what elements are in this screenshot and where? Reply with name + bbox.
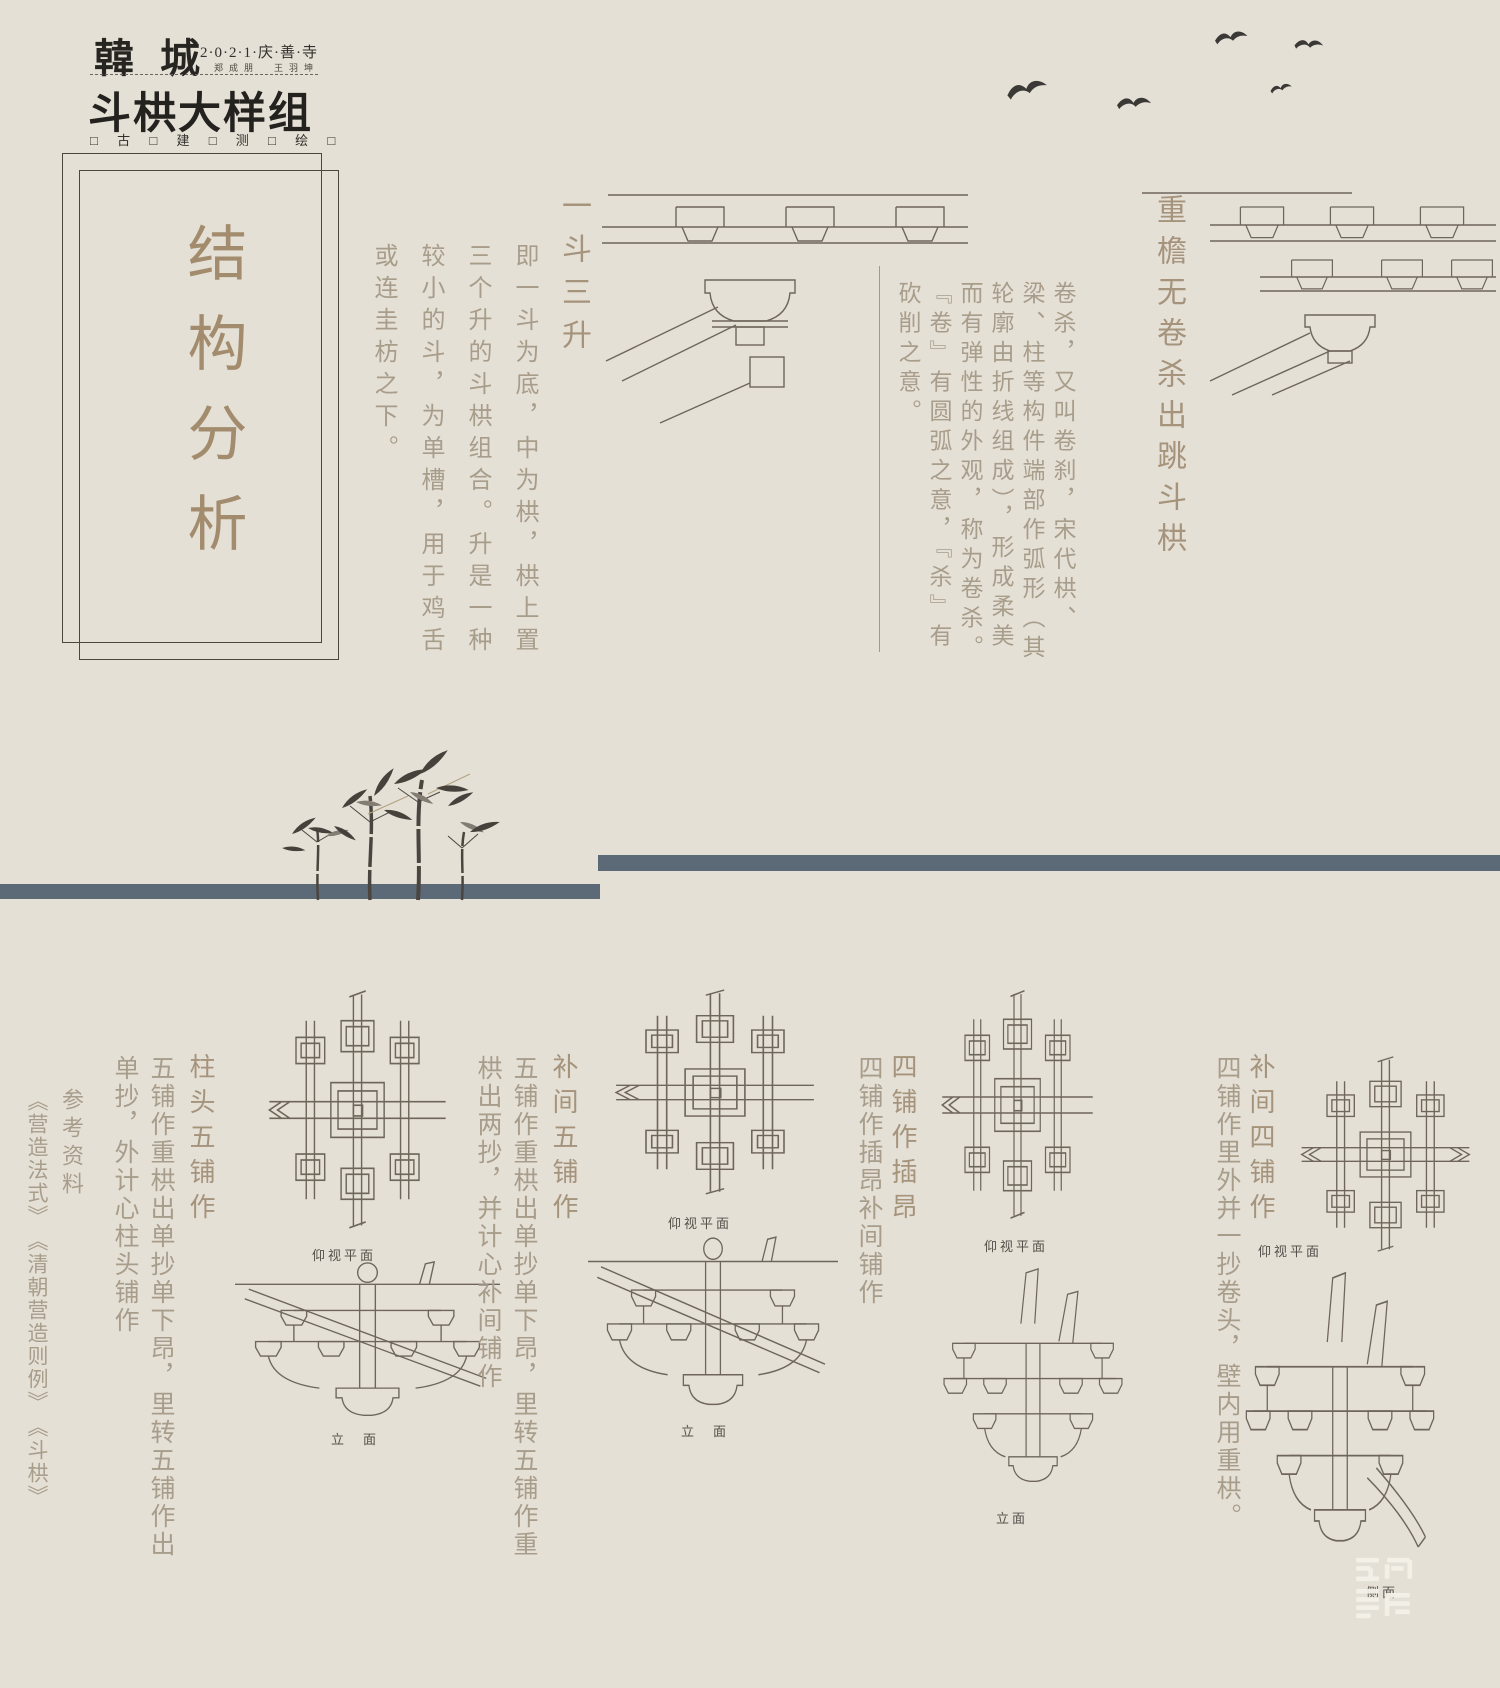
groupA-body: 五铺作重栱出单抄单下昂，里转五铺作出单抄，外计心柱头铺作 [102,1055,178,1563]
groupC-title: 四铺作插昂 [884,1053,921,1253]
groupD-plan-label: 仰视平面 [1258,1241,1322,1260]
references-books: 《营造法式》 《清朝营造则例》 《斗栱》 [22,1090,52,1565]
references-label: 参考资料 [55,1088,87,1228]
section-divider [879,266,880,652]
groupB-plan-label: 仰视平面 [668,1213,732,1232]
birds-illustration [990,22,1350,132]
groupC-body: 四铺作插昂补间铺作 [846,1055,886,1475]
groupD-title: 补间四铺作 [1242,1053,1279,1253]
section1-title: 一斗三升 [551,190,595,390]
groupA-elevation-label: 立 面 [331,1429,379,1448]
groupB-title: 补间五铺作 [545,1053,582,1253]
groupC-elevation-label: 立面 [996,1508,1028,1527]
groupC-plan-label: 仰视平面 [984,1236,1048,1255]
groupD-body: 四铺作里外并一抄卷头，壁内用重栱。 [1204,1055,1244,1545]
section2-drawing [1140,185,1498,397]
groupA-plan-diagram [255,985,460,1235]
groupB-elevation-label: 立 面 [681,1421,729,1440]
groupB-elevation-diagram [588,1235,838,1415]
groupC-elevation-diagram [938,1265,1128,1495]
logo-divider [90,74,318,75]
slide-canvas: 韓城 2·0·2·1·庆·善·寺 郑成朋 王羽坤 斗栱大样组 □ 古 □ 建 □… [0,0,1500,1688]
logo-motto: □ 古 □ 建 □ 测 □ 绘 □ [90,130,350,149]
groupC-plan-diagram [930,985,1105,1225]
groupB-body: 五铺作重栱出单抄单下昂，里转五铺作重栱出两抄，并计心补间铺作 [465,1055,541,1563]
section1-body: 即一斗为底，中为栱，栱上置三个升的斗栱组合。升是一种较小的斗，为单槽，用于鸡舌或… [355,243,547,661]
groupA-title: 柱头五铺作 [182,1053,219,1253]
groupB-plan-diagram [600,985,830,1200]
groupD-elevation-diagram [1240,1268,1440,1558]
section2-body: 卷杀，又叫卷刹，宋代栱、梁、柱等构件端部作弧形（其轮廓由折线组成），形成柔美而有… [888,281,1078,681]
page-title: 结构分析 [169,222,256,642]
groupD-plan-diagram [1288,1052,1483,1257]
accent-bar-right [598,855,1500,871]
groupA-elevation-diagram [235,1260,500,1425]
logo-dateline: 2·0·2·1·庆·善·寺 [200,41,380,62]
seal-ornament [1350,1552,1416,1620]
bamboo-illustration [222,762,507,900]
logo-authors: 郑成朋 王羽坤 [214,61,374,74]
